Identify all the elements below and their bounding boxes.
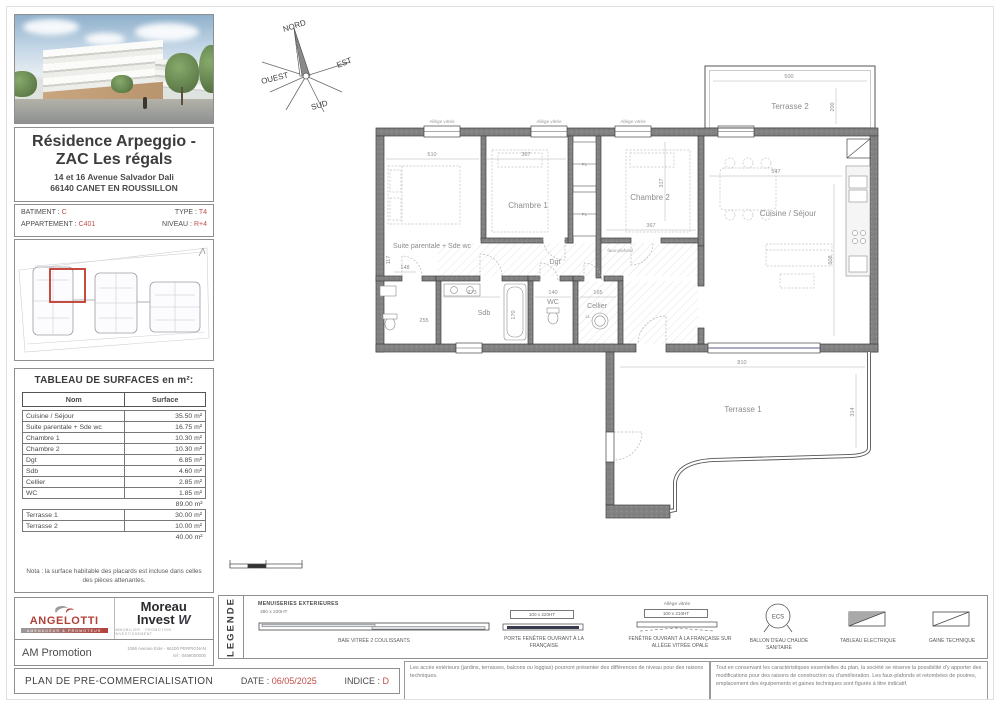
plan-sheet: Résidence Arpeggio - ZAC Les régals 14 e… — [0, 0, 1000, 706]
tableau-electrique-label: TABLEAU ELECTRIQUE — [830, 638, 906, 645]
room-label-terrasse2: Terrasse 2 — [771, 102, 809, 111]
ecs-label: BALLON D'EAU CHAUDE SANITAIRE — [740, 638, 818, 652]
subtotal-row: 89.00 m² — [23, 499, 206, 510]
table-row: Cellier2.85 m² — [23, 477, 206, 488]
table-row: Cuisine / Séjour35.50 m² — [23, 411, 206, 422]
date-value: 06/05/2025 — [272, 676, 317, 686]
bay-window-label: BAIE VITRÉE 2 COULISSANTS — [284, 638, 464, 645]
cloud-shape — [135, 23, 199, 41]
svg-text:314: 314 — [850, 407, 856, 416]
svg-text:810: 810 — [737, 360, 746, 366]
svg-text:140: 140 — [548, 290, 557, 296]
surface-table: Nom Surface Cuisine / Séjour35.50 m² Sui… — [22, 392, 206, 542]
compass-east-label: EST — [335, 56, 353, 70]
table-row: Terrasse 210.00 m² — [23, 521, 206, 532]
angelotti-tagline: AMÉNAGEUR & PROMOTEUR — [21, 628, 108, 633]
room-label-wc: WC — [547, 299, 559, 306]
gaine-technique-symbol — [847, 139, 870, 158]
footer-bar: PLAN DE PRE-COMMERCIALISATION DATE : 06/… — [14, 668, 400, 694]
svg-text:255: 255 — [419, 318, 428, 324]
moreau-tagline: IMMOBILIER · PROMOTION · INVESTISSEMENT — [115, 628, 214, 636]
am-promotion-label: AM Promotion — [22, 647, 92, 659]
tree — [199, 45, 214, 93]
allege-pre-label: Allège vitrée — [642, 602, 712, 607]
svg-text:200: 200 — [830, 102, 836, 111]
address-line2: 66140 CANET EN ROUSSILLON — [15, 183, 213, 194]
moreau-tel: tel : 0468000000 — [127, 653, 206, 660]
appartement-value: C401 — [79, 221, 96, 228]
branding-panel: ANGELOTTI AMÉNAGEUR & PROMOTEUR Moreau I… — [14, 597, 214, 666]
ecs-abbr: ECS — [772, 615, 784, 621]
surface-table-panel: TABLEAU DE SURFACES en m²: Nom Surface C… — [14, 368, 214, 593]
col-header-nom: Nom — [23, 393, 125, 407]
fenetre-dimension: 100 x 210HT — [644, 609, 708, 618]
lave-linge-label: LL — [585, 314, 591, 319]
kitchen-counter — [846, 166, 870, 276]
type-label: TYPE : — [175, 209, 197, 216]
type-value: T4 — [199, 209, 207, 216]
allege-label: Allège vitrée — [536, 119, 562, 124]
legend-title-cell: LEGENDE — [219, 596, 244, 658]
svg-text:367: 367 — [521, 152, 530, 158]
allege-label: Allège vitrée — [620, 119, 646, 124]
ecs-symbol: ECS — [760, 602, 796, 634]
pedestrian-figure — [143, 97, 147, 109]
table-row: WC1.85 m² — [23, 488, 206, 499]
col-header-surface: Surface — [125, 393, 206, 407]
tableau-electrique-symbol — [848, 610, 886, 628]
svg-text:317: 317 — [659, 178, 665, 187]
indice-label: INDICE : — [344, 676, 380, 686]
pf-dimension: 100 x 220HT — [510, 610, 574, 619]
site-plan-drawing — [15, 240, 213, 360]
title-block: Résidence Arpeggio - ZAC Les régals 14 e… — [14, 127, 214, 202]
gaine-technique-legend-symbol — [932, 610, 970, 628]
table-row: Sdb4.60 m² — [23, 466, 206, 477]
legend-title: LEGENDE — [226, 597, 237, 657]
appartement-label: APPARTEMENT : — [21, 221, 77, 228]
indice-value: D — [382, 676, 389, 686]
table-row: Chambre 210.30 m² — [23, 444, 206, 455]
disclaimer-modifications: Tout en conservant les caractéristiques … — [710, 661, 988, 700]
placard-label: PL — [582, 212, 588, 217]
compass-west-label: OUEST — [260, 71, 289, 86]
bay-window-symbol — [258, 618, 490, 634]
angelotti-logo: ANGELOTTI AMÉNAGEUR & PROMOTEUR — [15, 598, 114, 639]
placard-closets — [573, 142, 596, 236]
svg-text:608: 608 — [828, 255, 834, 264]
room-label-chambre1: Chambre 1 — [508, 201, 548, 210]
bay-dimension: 380 x 220HT — [260, 610, 287, 615]
allege-label: Allège vitrée — [429, 119, 455, 124]
nota-text: Nota : la surface habitable des placards… — [22, 568, 206, 585]
room-label-chambre2: Chambre 2 — [630, 193, 670, 202]
compass-needle — [294, 28, 310, 76]
svg-text:500: 500 — [784, 74, 793, 80]
svg-text:273: 273 — [467, 290, 476, 296]
room-label-sdb: Sdb — [478, 310, 491, 317]
svg-text:165: 165 — [593, 290, 602, 296]
svg-text:547: 547 — [771, 169, 780, 175]
room-label-terrasse1: Terrasse 1 — [724, 405, 762, 414]
gaine-technique-label: GAINE TECHNIQUE — [916, 638, 988, 645]
moreau-invest-logo: Moreau Invest W IMMOBILIER · PROMOTION ·… — [114, 598, 214, 639]
angelotti-name: ANGELOTTI — [30, 615, 99, 627]
compass-south-label: SUD — [310, 99, 329, 112]
terrasse1-parapet — [670, 352, 869, 511]
fenetre-symbol — [636, 621, 718, 633]
table-row: Terrasse 130.00 m² — [23, 510, 206, 521]
svg-text:170: 170 — [511, 310, 517, 319]
compass-hub — [303, 73, 309, 79]
street-ground — [15, 99, 213, 123]
moreau-name-line2: Invest — [137, 612, 175, 627]
disclaimer-access: Les accès extérieurs (jardins, terrasses… — [404, 661, 710, 700]
room-label-cellier: Cellier — [587, 303, 608, 310]
room-label-cuisine: Cuisine / Séjour — [760, 209, 817, 218]
tree — [14, 71, 37, 97]
angelotti-mark-icon — [44, 604, 84, 615]
svg-text:510: 510 — [427, 152, 436, 158]
legend-panel: LEGENDE MENUISERIES EXTERIEURES 380 x 22… — [218, 595, 988, 659]
niveau-value: R+4 — [194, 221, 207, 228]
cloud-shape — [23, 19, 79, 35]
faux-plafond-label: faux-plafond — [607, 248, 633, 253]
residence-title-line2: ZAC Les régals — [15, 151, 213, 169]
svg-text:117: 117 — [386, 256, 392, 265]
placard-label: PL — [582, 162, 588, 167]
surface-table-title: TABLEAU DE SURFACES en m²: — [22, 375, 206, 386]
shrub — [111, 75, 133, 93]
moreau-address: 1066 Avenue Eole - 66100 PERPIGNAN — [127, 646, 206, 653]
tree-trunk — [181, 87, 183, 105]
site-plan-thumbnail — [14, 239, 214, 361]
room-label-dgt: Dgt — [550, 259, 561, 266]
batiment-value: C — [62, 209, 67, 216]
svg-text:148: 148 — [400, 265, 409, 271]
niveau-label: NIVEAU : — [162, 221, 192, 228]
building-photo — [14, 14, 214, 124]
scale-bar — [228, 556, 304, 574]
terrace-total-row: 40.00 m² — [23, 532, 206, 543]
table-row: Suite parentale + Sde wc16.75 m² — [23, 422, 206, 433]
moreau-w-mark: W — [178, 612, 190, 627]
table-row: Dgt6.85 m² — [23, 455, 206, 466]
table-row: Chambre 110.30 m² — [23, 433, 206, 444]
residence-title-line1: Résidence Arpeggio - — [15, 133, 213, 151]
porte-fenetre-symbol — [502, 622, 584, 632]
batiment-label: BATIMENT : — [21, 209, 60, 216]
room-label-suite: Suite parentale + Sde wc — [393, 243, 472, 250]
porte-fenetre-label: PORTE FENÊTRE OUVRANT À LA FRANÇAISE — [492, 636, 596, 650]
fenetre-label: FENÊTRE OUVRANT À LA FRANÇAISE SUR ALLÈG… — [622, 636, 738, 650]
plan-title: PLAN DE PRE-COMMERCIALISATION — [25, 676, 213, 687]
unit-info-block: BATIMENT : C TYPE : T4 APPARTEMENT : C40… — [14, 204, 214, 237]
floor-plan: 510 367 367 317 547 608 500 200 810 314 … — [368, 18, 990, 580]
compass-rose: NORD EST OUEST SUD — [256, 18, 366, 120]
menuiseries-heading: MENUISERIES EXTERIEURES — [258, 601, 339, 607]
svg-text:367: 367 — [646, 223, 655, 229]
date-label: DATE : — [241, 676, 269, 686]
address-line1: 14 et 16 Avenue Salvador Dali — [15, 172, 213, 183]
